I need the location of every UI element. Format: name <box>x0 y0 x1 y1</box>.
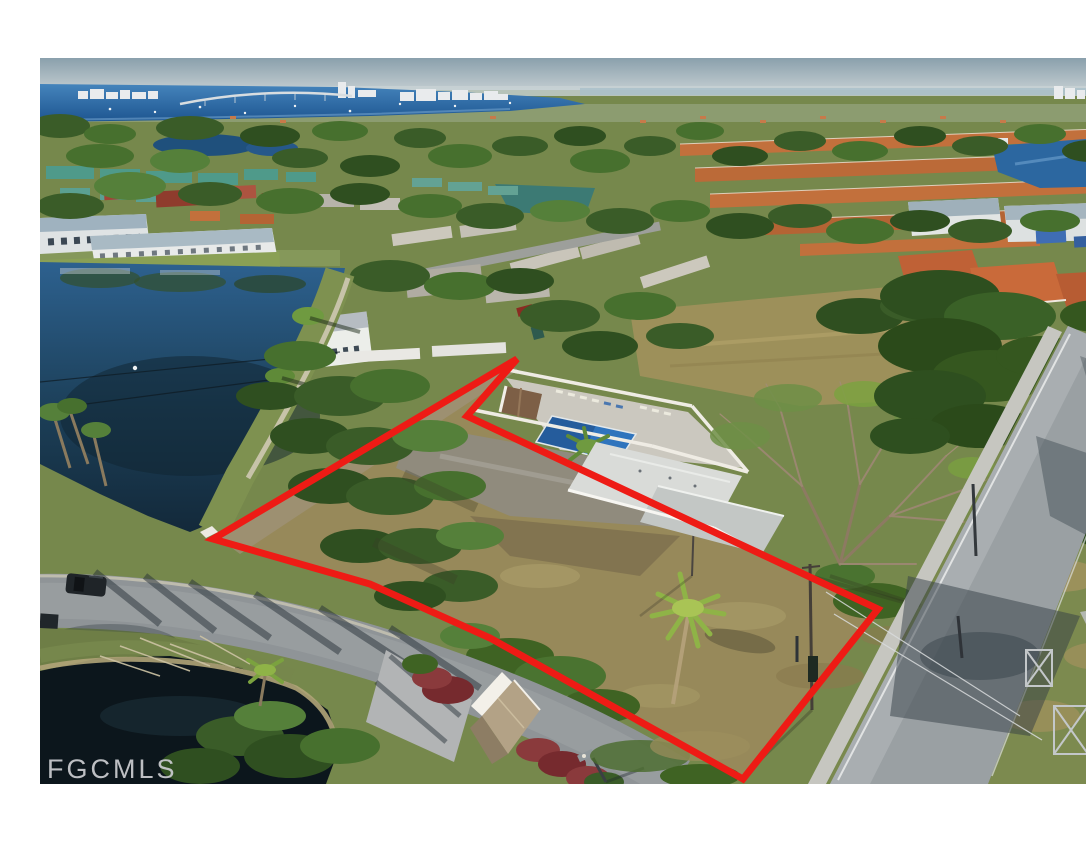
top-border <box>40 16 1086 58</box>
aerial-photo-canvas: FGCMLS <box>40 16 1086 830</box>
parked-car <box>65 573 107 597</box>
bottom-border <box>40 784 1086 830</box>
photo-content: FGCMLS <box>40 58 1086 792</box>
aerial-photo: FGCMLS <box>40 16 1086 830</box>
watermark-text: FGCMLS <box>47 754 178 784</box>
